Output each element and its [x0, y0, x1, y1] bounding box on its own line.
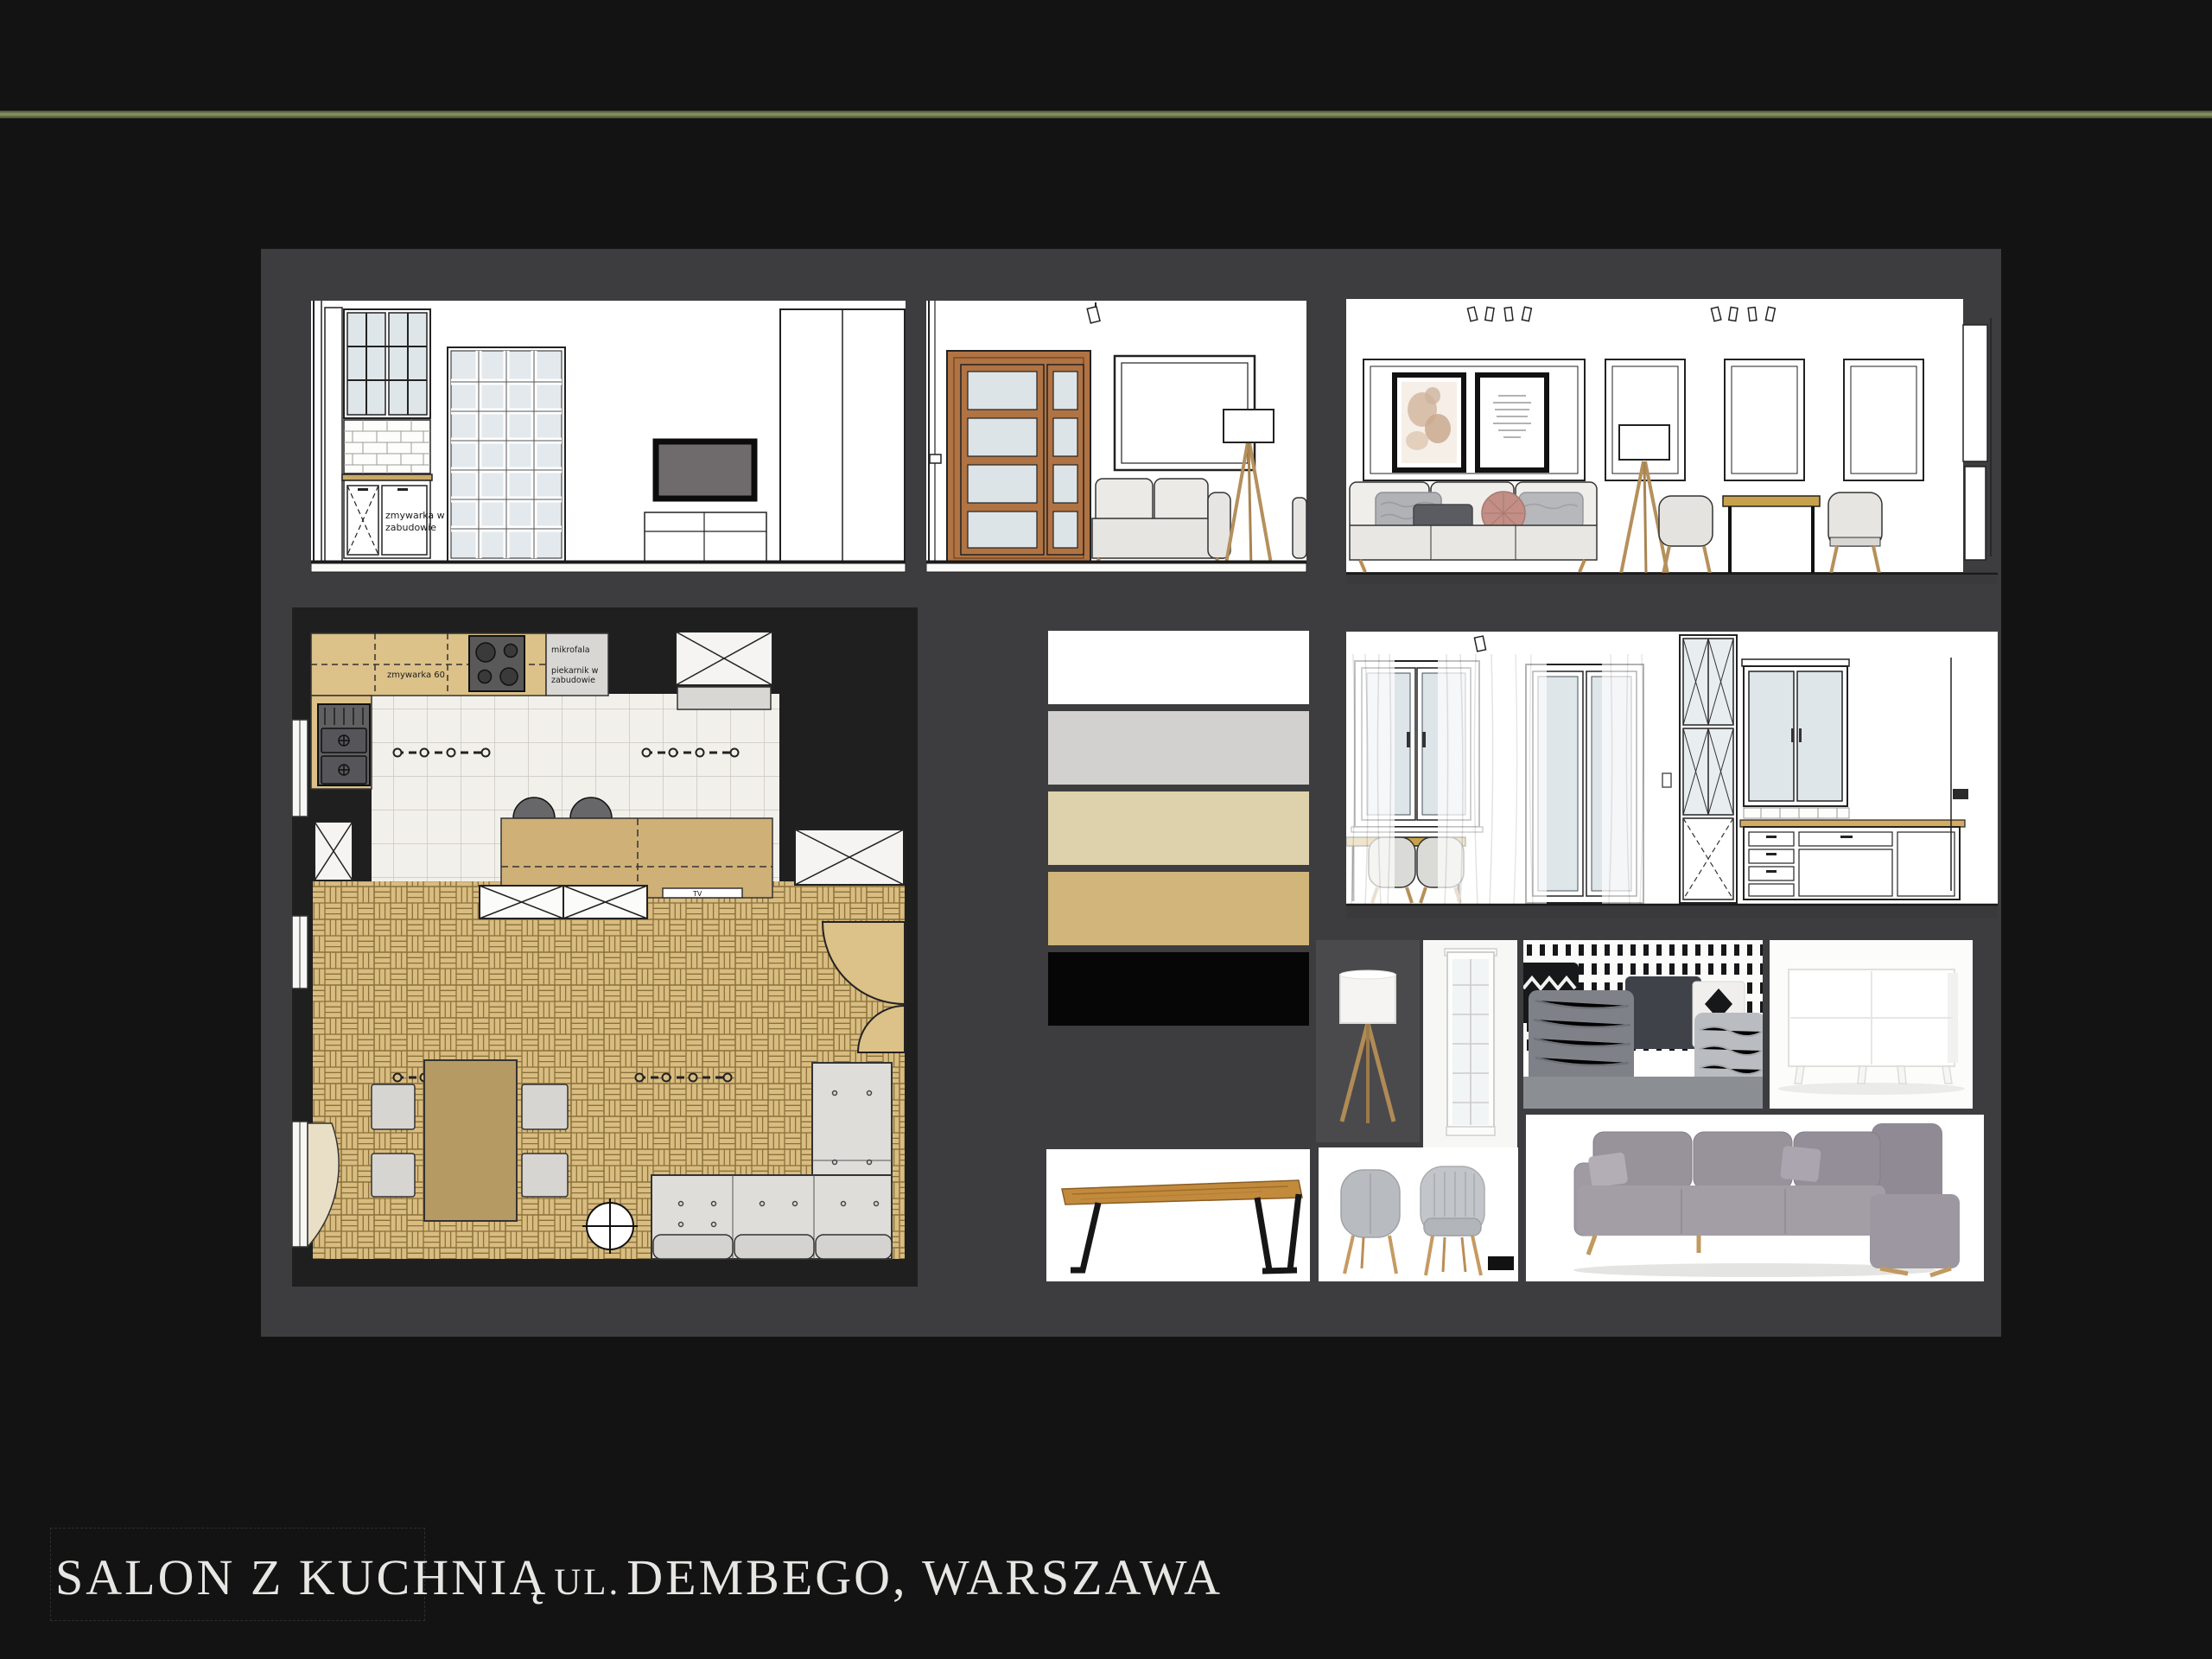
wall-section — [1963, 325, 1987, 461]
tile-pillows-photo — [1523, 940, 1763, 1109]
title-part-3: DEMBEGO, WARSZAWA — [626, 1549, 1223, 1605]
chaise — [1870, 1194, 1960, 1268]
chairs-photo — [1319, 1147, 1518, 1281]
right-shaft — [795, 829, 904, 885]
tile-corner-sofa — [1526, 1115, 1984, 1281]
bench-photo — [1046, 1149, 1310, 1281]
sofa-seat — [1523, 1077, 1763, 1109]
botanical-print-frame — [1395, 375, 1464, 470]
wall-switch — [1662, 773, 1671, 787]
tall-wardrobe — [780, 309, 905, 562]
power-socket — [1953, 789, 1968, 799]
svg-text:TV: TV — [692, 890, 702, 898]
bookcase-photo — [1423, 940, 1517, 1147]
charcoal-pillow — [1625, 976, 1701, 1049]
oven-microwave-column: mikrofala piekarnik w zabudowie — [546, 633, 608, 696]
accent-divider-line — [0, 111, 2212, 118]
chair-back-view — [1341, 1170, 1400, 1274]
elevation-sofa-wall — [1346, 299, 1998, 584]
brick-backsplash — [344, 420, 430, 474]
tile-backsplash — [1744, 808, 1849, 818]
color-palette — [1048, 631, 1309, 1033]
photo-watermark — [1488, 1256, 1514, 1270]
wood-double-door — [947, 351, 1090, 562]
elevation-door-wall — [926, 301, 1310, 582]
sofa-with-pillows — [1350, 482, 1597, 572]
tile-tripod-floor-lamp — [1316, 940, 1420, 1142]
tile-wood-bench-table — [1046, 1149, 1310, 1281]
swatch-light-gray — [1048, 711, 1309, 785]
page-title: SALON Z KUCHNIĄ UL. DEMBEGO, WARSZAWA — [55, 1548, 1223, 1606]
sofa-pillow — [1588, 1152, 1629, 1187]
text-poster-frame — [1478, 375, 1547, 470]
upper-glass-cabinets — [344, 309, 430, 418]
left-shaft — [315, 822, 353, 880]
elevation-kitchen-wall: zmywarka w zabudowie — [311, 301, 909, 582]
wall-socket — [930, 454, 941, 463]
cooktop — [469, 636, 524, 691]
dishwasher-cabinet: zmywarka w zabudowie — [344, 480, 445, 558]
chair-front-view — [1421, 1166, 1484, 1275]
tall-glass-cabinet — [1680, 635, 1737, 903]
tv-console — [645, 512, 766, 562]
svg-text:piekarnik w: piekarnik w — [551, 666, 599, 676]
svg-text:zabudowie: zabudowie — [551, 676, 595, 685]
gray-corduroy-pillow — [1529, 990, 1634, 1085]
sink-counter — [311, 696, 372, 789]
shaft-box — [676, 632, 772, 709]
sofa-pillow — [1780, 1146, 1821, 1182]
glass-bookcase — [448, 347, 565, 562]
sideboard-photo — [1770, 940, 1973, 1109]
tripod-floor-lamp-photo — [1316, 940, 1420, 1142]
floor-plan: zmywarka 60 mikrofala piekarnik w zabudo… — [292, 607, 918, 1287]
swatch-white — [1048, 631, 1309, 704]
elevation-window-wall — [1346, 632, 1998, 918]
title-part-2: UL. — [554, 1562, 620, 1603]
countertop — [342, 474, 432, 480]
wardrobe-boxes — [480, 886, 647, 918]
pillows-photo — [1523, 940, 1763, 1109]
svg-text:mikrofala: mikrofala — [551, 645, 590, 655]
plinth — [311, 563, 906, 572]
wall-tv — [656, 442, 754, 499]
swatch-black — [1048, 952, 1309, 1026]
svg-text:zmywarka 60: zmywarka 60 — [387, 671, 445, 680]
svg-text:zabudowie: zabudowie — [385, 522, 436, 533]
corner-sofa-photo — [1526, 1115, 1984, 1281]
swatch-gold — [1048, 872, 1309, 945]
floor-strip — [1346, 906, 1998, 918]
title-part-1: SALON Z KUCHNIĄ — [55, 1549, 548, 1605]
left-windows — [292, 720, 308, 1247]
tile-glass-door-bookcase — [1423, 940, 1517, 1147]
moodboard-panel: zmywarka w zabudowie — [261, 249, 2001, 1337]
tile-white-sideboard — [1770, 940, 1973, 1109]
svg-text:zmywarka w: zmywarka w — [385, 510, 445, 521]
floor-strip — [1346, 575, 1998, 584]
tile-upholstered-chairs — [1319, 1147, 1518, 1281]
tv-marker: TV — [663, 888, 742, 898]
swatch-cream — [1048, 791, 1309, 865]
presentation-page: { "page": { "background": "#131313", "ac… — [0, 0, 2212, 1659]
